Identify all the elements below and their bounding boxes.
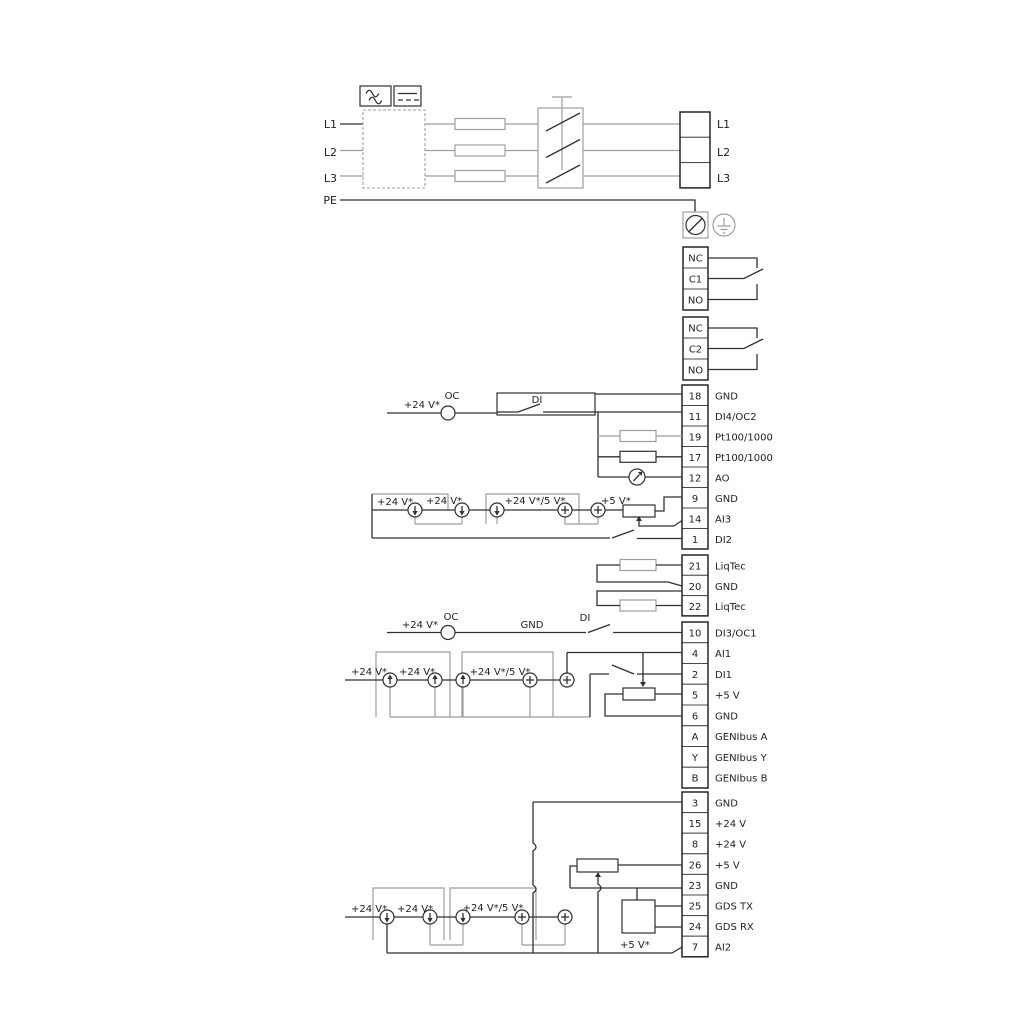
mains-label-l1: L1 [324, 118, 337, 131]
terminal-a: A [692, 732, 699, 743]
current-source-icon [490, 503, 504, 517]
terminal-21-label: LiqTec [715, 562, 746, 573]
terminal-15-label: +24 V [715, 819, 746, 830]
terminal-3-label: GND [715, 799, 738, 810]
di-label: DI [580, 613, 591, 624]
oc-label: OC [444, 612, 459, 623]
terminal-24: 24 [689, 922, 702, 933]
relay2-c2: C2 [689, 345, 702, 356]
voltage-source-icon [523, 673, 537, 687]
terminal-20: 20 [689, 582, 702, 593]
terminal-2: 2 [692, 670, 698, 681]
wiring-diagram-page: L1 L2 L3 PE [0, 0, 1024, 1024]
terminal-14-label: AI3 [715, 515, 731, 526]
supply-label-3: +24 V*/5 V* [505, 496, 566, 507]
relay1-no: NO [688, 296, 703, 307]
terminal-7: 7 [692, 943, 698, 954]
voltage-source-icon [591, 503, 605, 517]
ac-symbol-box [360, 86, 391, 106]
terminal-24-label: GDS RX [715, 922, 754, 933]
relay1-c1: C1 [689, 275, 702, 286]
voltage-source-icon [558, 503, 572, 517]
terminal-a-label: GENIbus A [715, 732, 768, 743]
di-label: DI [532, 395, 543, 406]
current-source-icon [408, 503, 422, 517]
voltage-source-icon [558, 910, 572, 924]
gnd-label: GND [521, 620, 544, 631]
terminal-26-label: +5 V [715, 860, 740, 871]
relay2-no: NO [688, 366, 703, 377]
terminal-8-label: +24 V [715, 840, 746, 851]
terminal-2-label: DI1 [715, 670, 732, 681]
terminal-label-l2: L2 [717, 146, 730, 159]
current-source-icon [455, 503, 469, 517]
terminal-4: 4 [692, 649, 698, 660]
terminal-b-label: GENIbus B [715, 774, 768, 785]
terminal-1-label: DI2 [715, 535, 732, 546]
potentiometer [623, 688, 655, 700]
dc-symbol-box [394, 86, 421, 106]
terminal-7-label: AI2 [715, 943, 731, 954]
current-source-icon [456, 910, 470, 924]
current-source-icon [383, 673, 397, 687]
background [0, 0, 1024, 1024]
wiring-diagram: L1 L2 L3 PE [0, 0, 1024, 1024]
terminal-3: 3 [692, 799, 698, 810]
terminal-4-label: AI1 [715, 649, 731, 660]
terminal-22-label: LiqTec [715, 602, 746, 613]
terminal-11: 11 [689, 412, 702, 423]
terminal-19: 19 [689, 433, 702, 444]
terminal-17: 17 [689, 453, 702, 464]
terminal-26: 26 [689, 860, 702, 871]
supply-label-4: +5 V* [620, 940, 650, 951]
terminal-8: 8 [692, 840, 698, 851]
relay1-nc: NC [688, 254, 702, 265]
terminal-y: Y [691, 753, 699, 764]
relay2-nc: NC [688, 324, 702, 335]
gds-sensor-box [622, 900, 655, 933]
emc-filter-box [363, 110, 425, 188]
terminal-6: 6 [692, 712, 698, 723]
supply-label-1: +24 V* [377, 497, 413, 508]
terminal-11-label: DI4/OC2 [715, 412, 757, 423]
terminal-25-label: GDS TX [715, 902, 753, 913]
pt100-sensor-17 [620, 451, 656, 462]
supply-label: +24 V* [404, 400, 440, 411]
terminal-19-label: Pt100/1000 [715, 433, 773, 444]
potentiometer [623, 505, 655, 517]
terminal-25: 25 [689, 902, 702, 913]
terminal-12: 12 [689, 474, 702, 485]
terminal-17-label: Pt100/1000 [715, 453, 773, 464]
oc-source-icon [441, 626, 455, 640]
oc-label: OC [445, 391, 460, 402]
current-source-icon [456, 673, 470, 687]
terminal-18: 18 [689, 392, 702, 403]
terminal-14: 14 [689, 515, 702, 526]
current-source-icon [423, 910, 437, 924]
terminal-23-label: GND [715, 881, 738, 892]
ao-meter-icon [629, 469, 645, 485]
terminal-label-l3: L3 [717, 172, 730, 185]
terminal-y-label: GENIbus Y [715, 753, 768, 764]
supply-label: +24 V* [402, 620, 438, 631]
oc-source-icon [441, 406, 455, 420]
terminal-22: 22 [689, 602, 702, 613]
terminal-15: 15 [689, 819, 702, 830]
mains-terminal-block: L1 L2 L3 [680, 112, 730, 188]
terminal-12-label: AO [715, 474, 730, 485]
terminal-5-label: +5 V [715, 691, 740, 702]
terminal-b: B [692, 774, 699, 785]
supply-label-3: +24 V*/5 V* [463, 903, 524, 914]
terminal-20-label: GND [715, 582, 738, 593]
current-source-icon [428, 673, 442, 687]
terminal-18-label: GND [715, 392, 738, 403]
terminal-10: 10 [689, 629, 702, 640]
terminal-9-label: GND [715, 494, 738, 505]
voltage-source-icon [560, 673, 574, 687]
terminal-6-label: GND [715, 712, 738, 723]
terminal-label-l1: L1 [717, 118, 730, 131]
current-source-icon [380, 910, 394, 924]
mains-label-pe: PE [323, 194, 337, 207]
terminal-10-label: DI3/OC1 [715, 629, 757, 640]
terminal-9: 9 [692, 494, 698, 505]
potentiometer [577, 859, 618, 872]
terminal-5: 5 [692, 691, 698, 702]
mains-label-l2: L2 [324, 146, 337, 159]
terminal-23: 23 [689, 881, 702, 892]
voltage-source-icon [515, 910, 529, 924]
supply-label-1: +24 V* [351, 667, 387, 678]
mains-label-l3: L3 [324, 172, 337, 185]
terminal-1: 1 [692, 535, 698, 546]
terminal-21: 21 [689, 562, 702, 573]
supply-label-3: +24 V*/5 V* [470, 667, 531, 678]
